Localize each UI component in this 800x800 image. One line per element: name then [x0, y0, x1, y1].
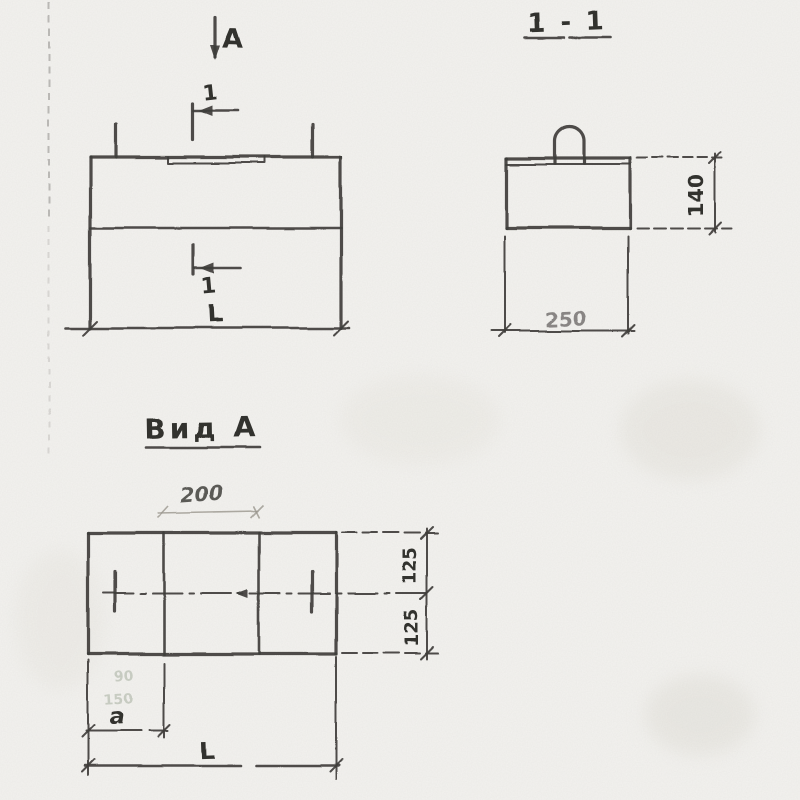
plan-title: Вид А: [144, 411, 260, 446]
plan-dim-label-125-upper: 125: [400, 547, 421, 585]
view-direction-label: A: [222, 23, 244, 55]
section-title: 1 - 1: [527, 7, 608, 40]
plan-faint-mark-upper: 90: [113, 668, 134, 685]
section-cut-bottom-label: 1: [200, 273, 217, 299]
drawing-sheet: A 1 1 L 1 - 1 140 250 Вид А 200 125 125 …: [0, 0, 800, 800]
section-dim-label-250: 250: [544, 306, 587, 331]
front-letter-l: L: [206, 300, 223, 329]
section-dim-label-140: 140: [684, 175, 708, 217]
drawing-canvas: A 1 1 L 1 - 1 140 250 Вид А 200 125 125 …: [0, 0, 800, 800]
section-cut-top-label: 1: [201, 80, 219, 106]
plan-dim-label-125-lower: 125: [402, 609, 423, 647]
plan-dim-label-l: L: [200, 737, 216, 766]
plan-faint-mark-lower: 150: [104, 691, 134, 709]
plan-dim-label-200: 200: [180, 481, 223, 508]
